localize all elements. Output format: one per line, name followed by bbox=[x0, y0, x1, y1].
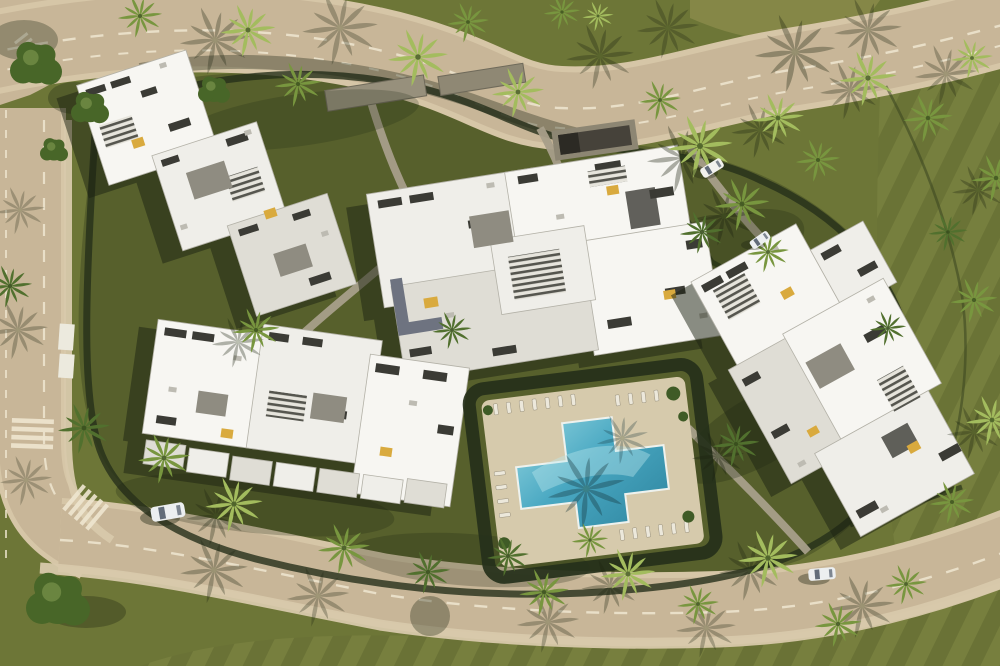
yellow-lounger bbox=[606, 185, 619, 196]
yellow-lounger bbox=[220, 428, 233, 439]
courtyard bbox=[196, 391, 229, 417]
aerial-render bbox=[0, 0, 1000, 666]
courtyard bbox=[469, 210, 514, 248]
courtyard bbox=[310, 393, 347, 423]
yellow-lounger bbox=[379, 447, 392, 458]
aerial-scene bbox=[0, 0, 1000, 666]
courtyard bbox=[625, 187, 661, 229]
pergola bbox=[508, 249, 566, 301]
car-bottom-road bbox=[808, 567, 836, 581]
pergola bbox=[266, 391, 307, 422]
